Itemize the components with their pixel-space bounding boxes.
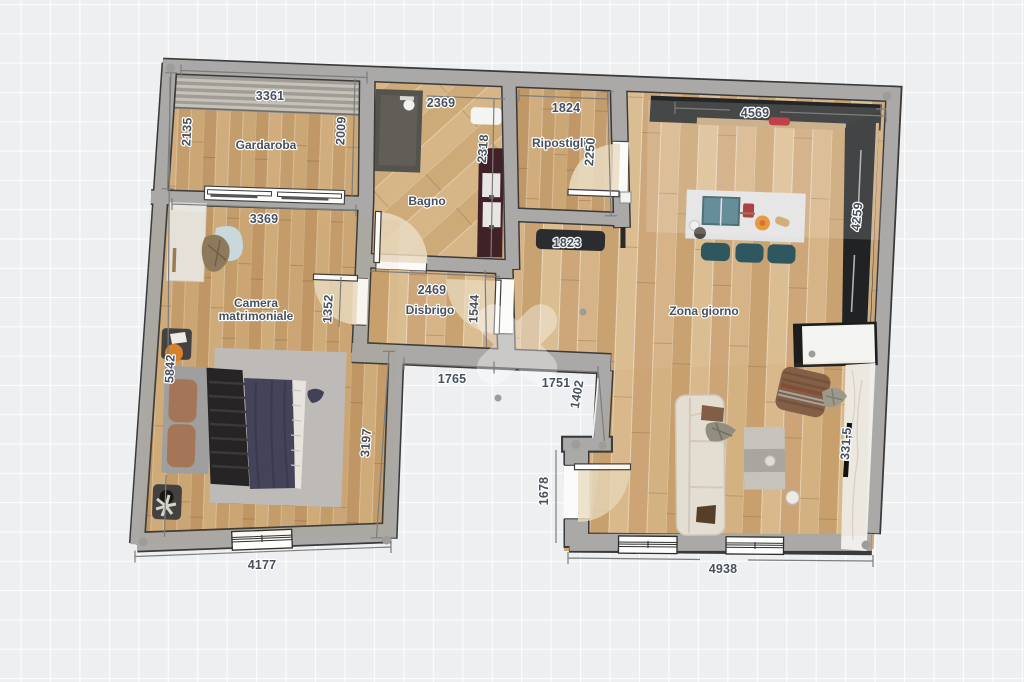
svg-text:2135: 2135	[179, 117, 194, 146]
svg-text:1824: 1824	[552, 101, 581, 115]
svg-text:2318: 2318	[475, 134, 491, 164]
svg-text:1544: 1544	[466, 294, 481, 323]
svg-text:1823: 1823	[553, 236, 582, 250]
svg-text:2250: 2250	[582, 137, 598, 167]
svg-text:2369: 2369	[427, 96, 456, 110]
svg-text:4259: 4259	[849, 202, 866, 232]
svg-text:4177: 4177	[248, 558, 277, 572]
svg-text:3197: 3197	[358, 428, 374, 458]
svg-text:Disbrigo: Disbrigo	[406, 303, 455, 317]
svg-text:3361: 3361	[256, 89, 285, 103]
svg-text:2009: 2009	[333, 116, 348, 145]
svg-text:Camera: Camera	[234, 296, 278, 310]
svg-text:matrimoniale: matrimoniale	[219, 309, 294, 323]
svg-text:4938: 4938	[709, 562, 738, 576]
svg-text:4569: 4569	[741, 106, 770, 120]
svg-text:1751: 1751	[542, 376, 571, 390]
svg-text:5842: 5842	[162, 354, 177, 383]
svg-text:1678: 1678	[537, 477, 551, 506]
svg-text:Zona giorno: Zona giorno	[669, 304, 738, 318]
svg-text:1352: 1352	[320, 294, 335, 323]
svg-text:331,5: 331,5	[838, 427, 854, 460]
svg-text:Gardaroba: Gardaroba	[236, 138, 297, 152]
svg-text:3369: 3369	[250, 212, 279, 226]
svg-text:1765: 1765	[438, 372, 467, 386]
svg-text:2469: 2469	[418, 283, 447, 297]
svg-text:Bagno: Bagno	[408, 194, 445, 208]
